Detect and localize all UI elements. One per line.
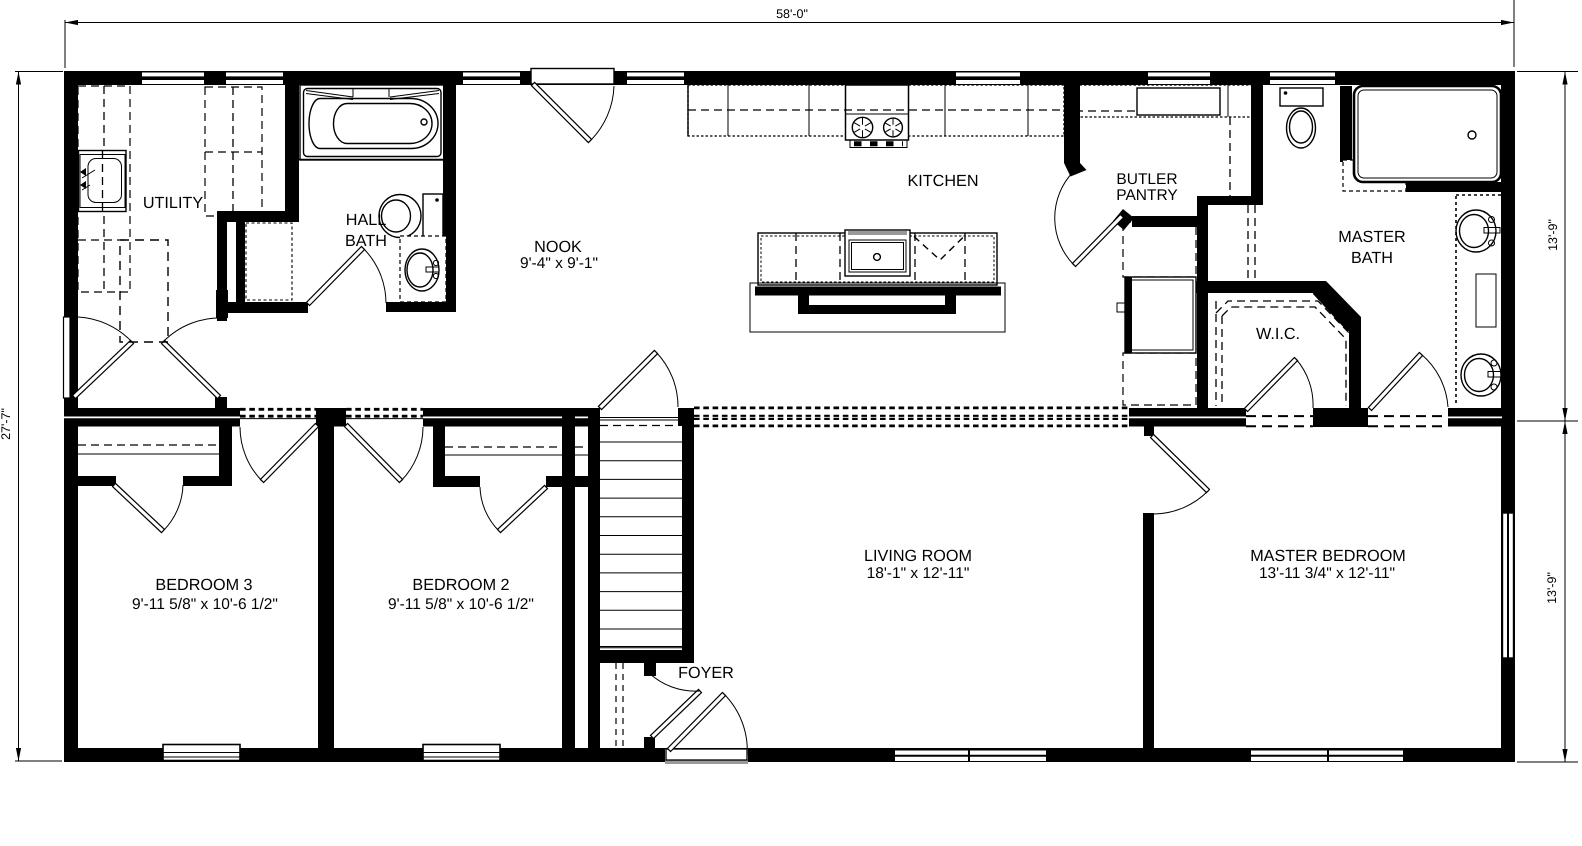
svg-text:BATH: BATH (345, 232, 387, 250)
svg-text:NOOK: NOOK (534, 238, 582, 256)
svg-text:9'-11 5/8" x 10'-6 1/2": 9'-11 5/8" x 10'-6 1/2" (132, 596, 278, 613)
svg-text:9'-11 5/8" x 10'-6 1/2": 9'-11 5/8" x 10'-6 1/2" (388, 596, 534, 613)
svg-text:MASTER BEDROOM: MASTER BEDROOM (1250, 547, 1406, 565)
svg-text:13'-9": 13'-9" (1545, 572, 1559, 604)
svg-text:LIVING ROOM: LIVING ROOM (864, 547, 972, 565)
svg-text:BEDROOM 2: BEDROOM 2 (412, 576, 509, 594)
svg-text:13'-11 3/4" x 12'-11": 13'-11 3/4" x 12'-11" (1259, 565, 1395, 582)
svg-text:KITCHEN: KITCHEN (907, 172, 978, 190)
svg-text:BUTLER: BUTLER (1116, 171, 1177, 188)
svg-text:MASTER: MASTER (1338, 228, 1405, 246)
svg-text:FOYER: FOYER (678, 664, 734, 682)
svg-text:UTILITY: UTILITY (143, 194, 203, 212)
svg-text:27'-7": 27'-7" (0, 408, 13, 440)
svg-text:18'-1" x 12'-11": 18'-1" x 12'-11" (867, 565, 970, 582)
svg-text:9'-4" x 9'-1": 9'-4" x 9'-1" (520, 255, 598, 272)
svg-text:13'-9": 13'-9" (1546, 219, 1560, 251)
svg-text:W.I.C.: W.I.C. (1256, 325, 1300, 343)
svg-text:PANTRY: PANTRY (1116, 187, 1177, 204)
svg-text:HALL: HALL (346, 211, 387, 229)
svg-text:BEDROOM 3: BEDROOM 3 (155, 576, 252, 594)
svg-text:BATH: BATH (1351, 249, 1393, 267)
svg-text:58'-0": 58'-0" (776, 7, 808, 21)
